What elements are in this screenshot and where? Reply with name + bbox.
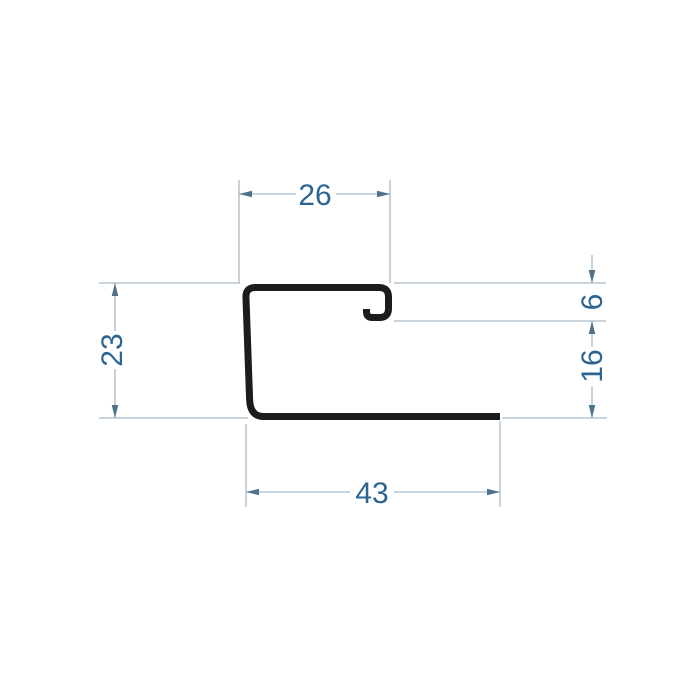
profile-drawing-svg: 26 23 6 16 bbox=[0, 0, 700, 700]
arrowhead-down-icon bbox=[589, 405, 596, 418]
arrowhead-right-icon bbox=[377, 191, 390, 198]
dimension-top-width: 26 bbox=[239, 179, 390, 283]
dimension-label-hook-opening: 6 bbox=[576, 294, 609, 311]
technical-drawing-page: 26 23 6 16 bbox=[0, 0, 700, 700]
dimension-label-left-height: 23 bbox=[96, 333, 129, 366]
dimension-label-lip-height: 16 bbox=[576, 349, 609, 382]
dimension-bottom-length: 43 bbox=[246, 421, 500, 510]
dimension-label-top-width: 26 bbox=[298, 179, 331, 212]
arrowhead-left-icon bbox=[239, 191, 252, 198]
arrowhead-down-icon bbox=[112, 405, 119, 418]
arrowhead-up-icon bbox=[112, 283, 119, 296]
arrowhead-left-icon bbox=[246, 489, 259, 496]
arrowhead-down-icon bbox=[589, 270, 596, 283]
dimension-left-height: 23 bbox=[96, 283, 248, 418]
dimension-label-bottom-length: 43 bbox=[355, 477, 388, 510]
dimension-lip-height: 16 bbox=[576, 321, 609, 418]
arrowhead-right-icon bbox=[487, 489, 500, 496]
profile-outline bbox=[246, 288, 500, 417]
arrowhead-up-icon bbox=[589, 321, 596, 334]
